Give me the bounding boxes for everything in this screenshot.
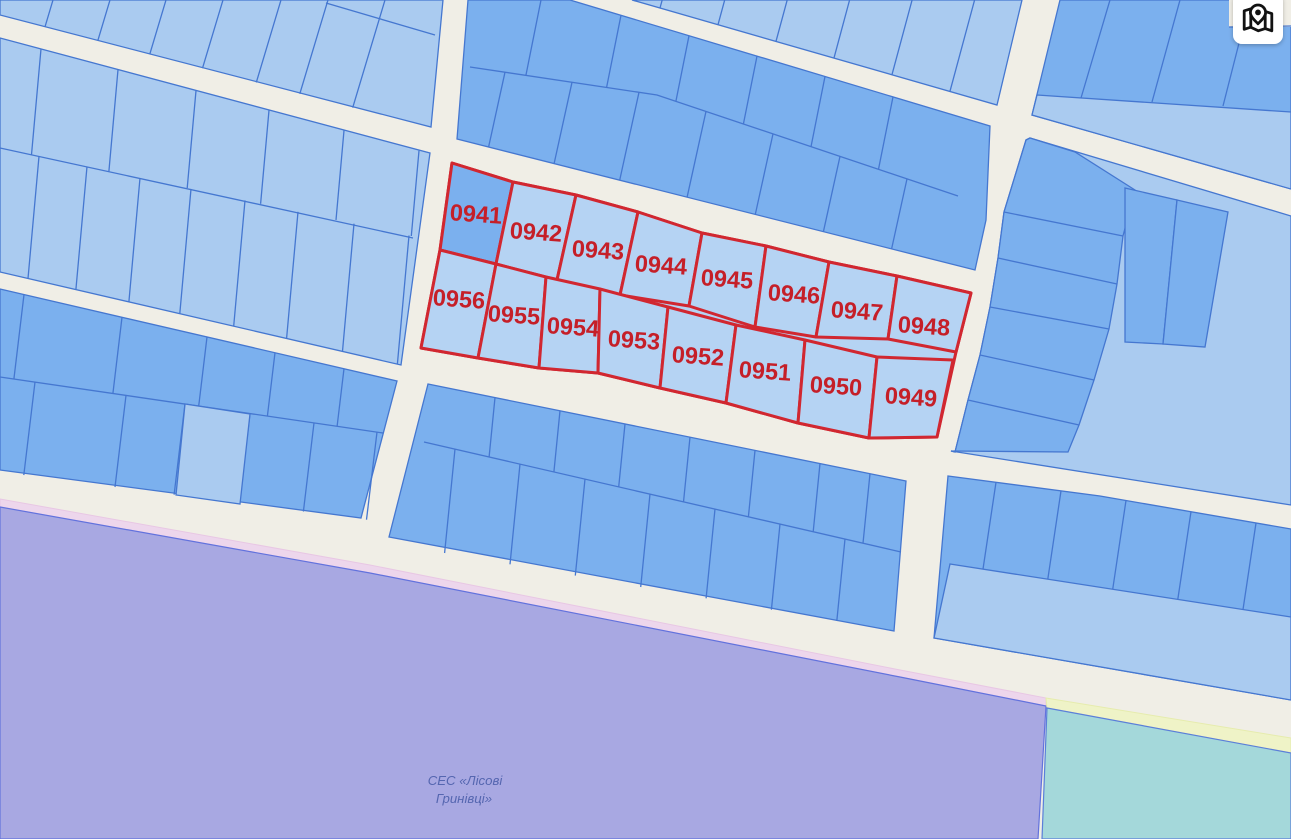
svg-text:0952: 0952 bbox=[671, 341, 725, 371]
svg-text:0951: 0951 bbox=[738, 356, 792, 386]
svg-text:0955: 0955 bbox=[487, 300, 541, 330]
svg-text:Гринівці»: Гринівці» bbox=[436, 791, 492, 806]
svg-text:0954: 0954 bbox=[546, 312, 600, 342]
svg-text:0944: 0944 bbox=[634, 250, 688, 280]
svg-text:0943: 0943 bbox=[571, 235, 625, 265]
svg-text:0949: 0949 bbox=[884, 382, 938, 412]
svg-text:0950: 0950 bbox=[809, 371, 863, 401]
svg-text:0945: 0945 bbox=[700, 264, 754, 294]
svg-text:0941: 0941 bbox=[449, 199, 503, 229]
svg-text:СЕС «Лісові: СЕС «Лісові bbox=[428, 773, 504, 788]
svg-text:0946: 0946 bbox=[767, 279, 821, 309]
svg-text:0948: 0948 bbox=[897, 311, 951, 341]
svg-text:0953: 0953 bbox=[607, 325, 661, 355]
svg-text:0956: 0956 bbox=[432, 284, 486, 314]
svg-text:0947: 0947 bbox=[830, 296, 884, 326]
svg-text:0942: 0942 bbox=[509, 217, 563, 247]
